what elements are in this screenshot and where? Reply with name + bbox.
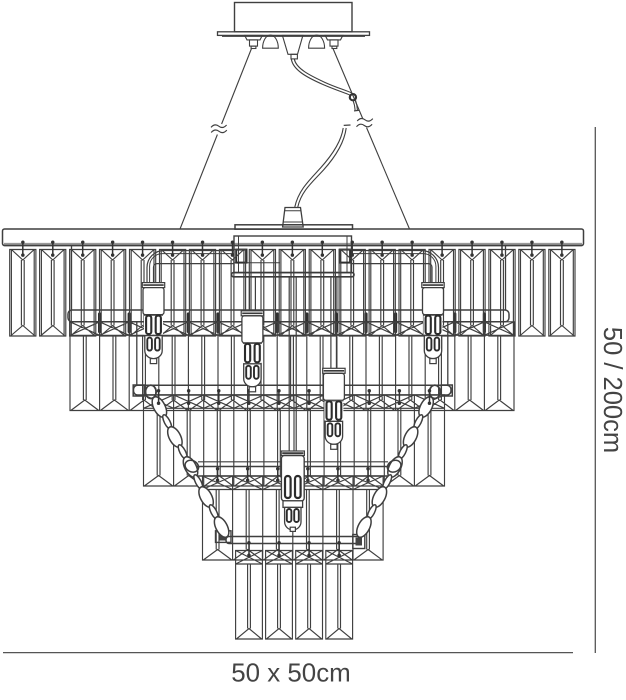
svg-text:50 / 200cm: 50 / 200cm xyxy=(598,327,626,453)
svg-text:50 x 50cm: 50 x 50cm xyxy=(231,660,350,688)
